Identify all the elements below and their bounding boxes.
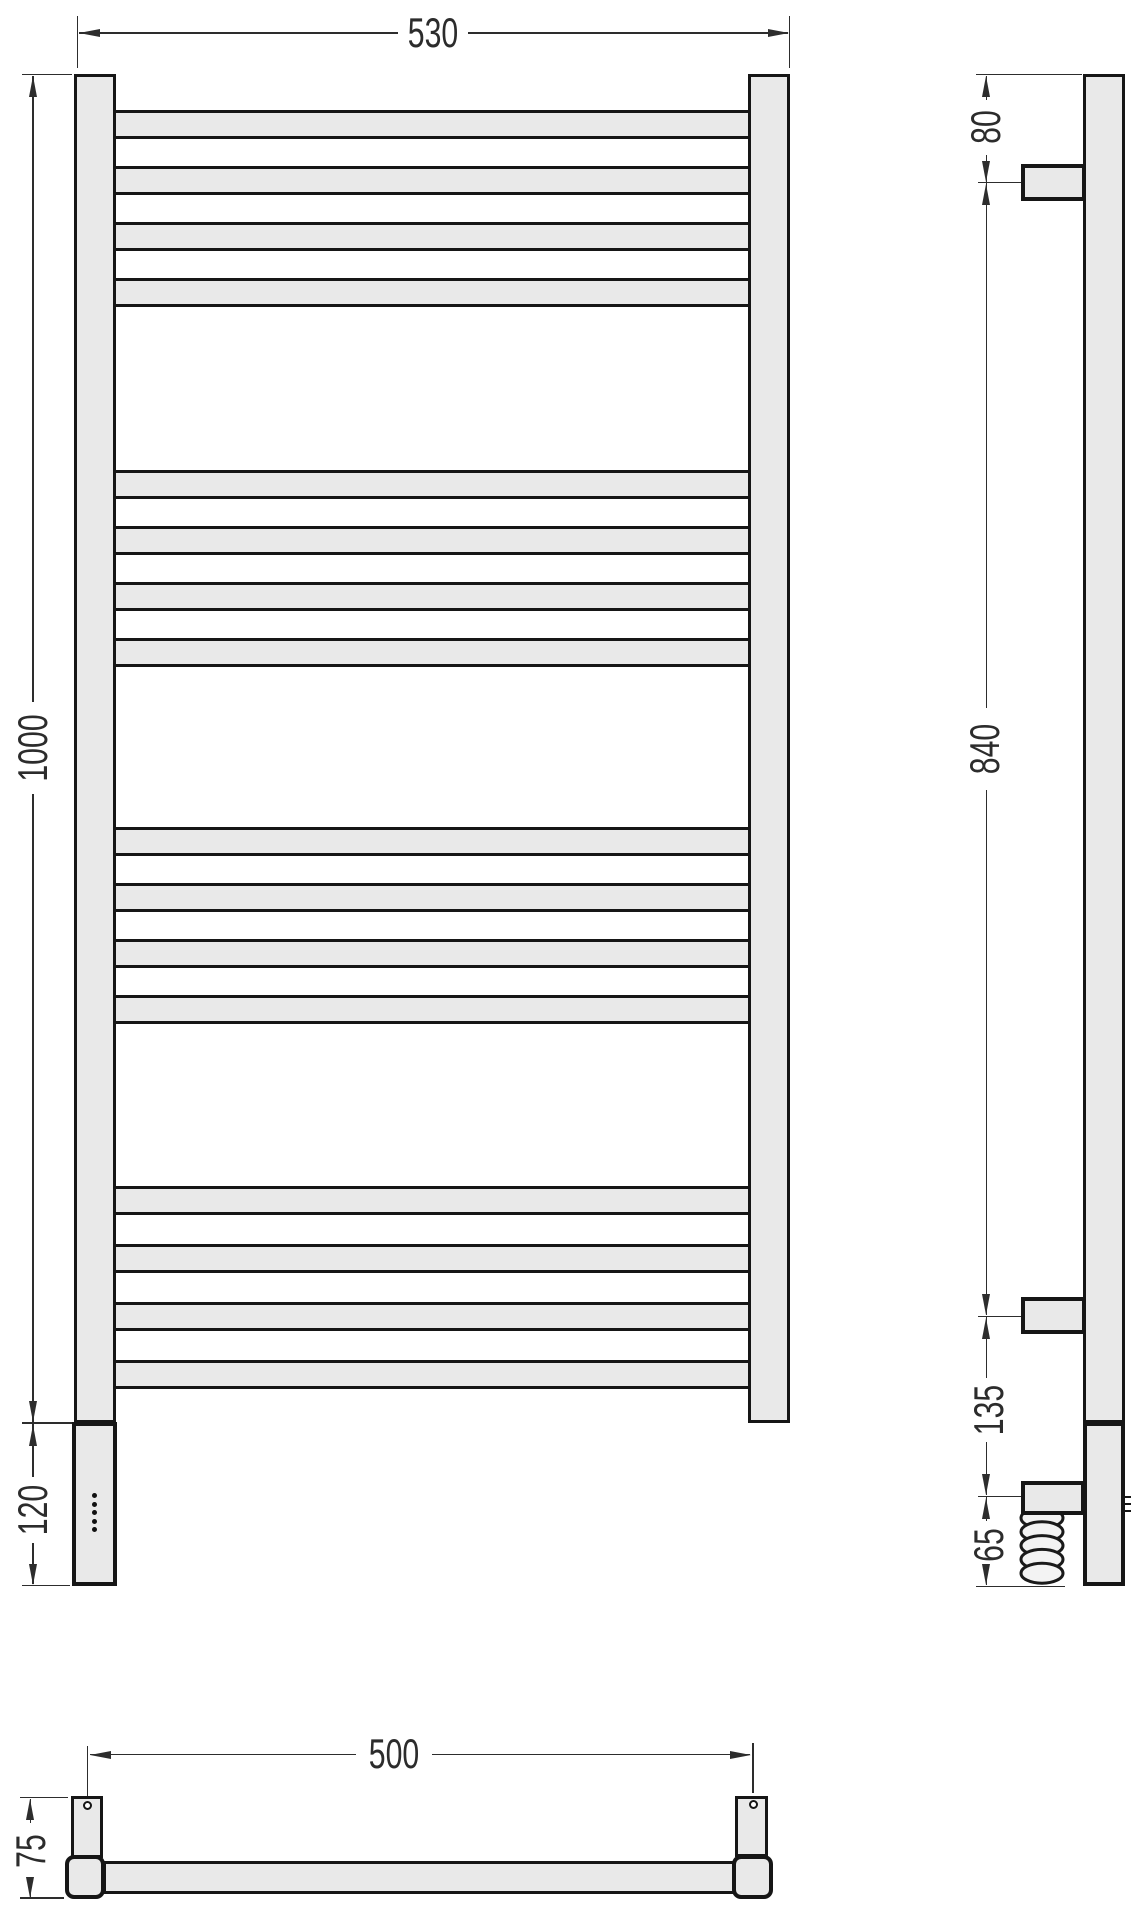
dimension-line [90,1754,356,1756]
side-housing [1083,1422,1125,1586]
dim-label-75: 75 [10,1834,52,1868]
indicator-dot [92,1519,97,1524]
dim-label-530: 530 [408,12,458,54]
arrowhead-down [26,1877,34,1898]
dim-label-65: 65 [968,1528,1010,1562]
arrowhead-down [29,1401,37,1422]
towel-rung [110,222,754,251]
towel-rung [110,995,754,1024]
dimension-line [986,183,988,708]
extension-line [87,1746,89,1796]
extension-line [22,1422,72,1424]
towel-rung [110,526,754,555]
dimension-line [32,794,34,1422]
dimension-line [79,32,398,34]
extension-line [20,1797,68,1799]
coil-loop [1021,1563,1063,1583]
indicator-dot [92,1502,97,1507]
towel-rung [110,883,754,912]
arrowhead-down [982,1564,990,1585]
dimension-line [32,76,34,702]
indicator-dot [92,1527,97,1532]
dim-label-1000: 1000 [12,714,54,781]
arrowhead-left [90,1751,111,1759]
lower-wall-bracket [1021,1297,1086,1334]
cable-terminal-tick [1123,1503,1131,1505]
arrowhead-right [730,1751,751,1759]
right-bolt-hole [749,1800,758,1809]
rail-tube [103,1861,736,1894]
cable-terminal-tick [1123,1510,1131,1512]
indicator-dots [92,1493,97,1532]
left-foot [65,1855,105,1899]
side-post [1083,74,1125,1423]
arrowhead-up [982,184,990,205]
towel-rung [110,638,754,667]
dimension-line [986,790,988,1315]
indicator-dot [92,1510,97,1515]
arrowhead-up [29,1425,37,1446]
towel-rung [110,827,754,856]
towel-rung [110,939,754,968]
left-bolt-hole [83,1801,92,1810]
dim-label-135: 135 [968,1385,1010,1435]
arrowhead-up [982,1318,990,1339]
towel-rung [110,110,754,139]
towel-rung [110,1244,754,1273]
extension-line [789,16,791,68]
towel-rung [110,1302,754,1331]
arrowhead-down [982,161,990,182]
heating-element-box [1021,1481,1085,1515]
dim-label-80: 80 [965,110,1007,144]
dim-label-120: 120 [12,1485,54,1535]
towel-rung [110,582,754,611]
arrowhead-down [29,1564,37,1585]
indicator-dot [92,1493,97,1498]
dim-label-500: 500 [369,1733,419,1775]
arrowhead-right [768,29,789,37]
arrowhead-up [29,76,37,97]
arrowhead-up [26,1799,34,1820]
arrowhead-left [79,29,100,37]
cable-terminal-tick [1123,1496,1131,1498]
front-left-post [74,74,116,1423]
arrowhead-up [982,76,990,97]
extension-line [22,74,72,76]
technical-drawing-canvas: 530 1000 120 [0,0,1146,1920]
arrowhead-up [982,1498,990,1519]
extension-line [752,1743,754,1793]
front-right-post [748,74,790,1423]
extension-line [77,16,79,68]
right-foot [732,1855,773,1899]
dimension-line [432,1754,750,1756]
towel-rung [110,470,754,499]
extension-line [976,74,1082,76]
dim-label-840: 840 [964,724,1006,774]
upper-wall-bracket [1021,164,1086,201]
dimension-line [468,32,788,34]
towel-rung [110,166,754,195]
towel-rung [110,1360,754,1389]
arrowhead-down [982,1294,990,1315]
arrowhead-down [982,1474,990,1495]
towel-rung [110,1186,754,1215]
towel-rung [110,278,754,307]
